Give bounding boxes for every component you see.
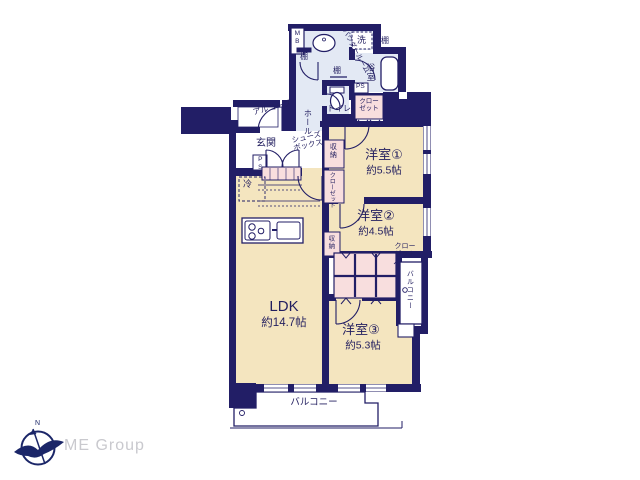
label-laundry: 洗 bbox=[357, 36, 366, 45]
bathtub-icon bbox=[381, 57, 398, 90]
floorplan-canvas: MB パウダールーム 洗 棚 棚 棚 浴室 PS トイレ クローゼット アルコー… bbox=[0, 0, 640, 480]
label-shelf-c: 棚 bbox=[333, 67, 341, 75]
label-ldk-name: LDK bbox=[269, 299, 298, 315]
ldk-floor bbox=[236, 176, 322, 384]
label-shelf-a: 棚 bbox=[381, 37, 389, 45]
label-room2-area: 約4.5帖 bbox=[358, 226, 394, 237]
label-shelf-b: 棚 bbox=[300, 53, 308, 61]
label-bathroom: 浴室 bbox=[366, 63, 375, 82]
label-room2-name: 洋室② bbox=[357, 209, 395, 223]
label-storage-room2: 収納 bbox=[326, 235, 333, 250]
kitchen-sink-icon bbox=[277, 222, 300, 239]
label-balcony-right: バルコニー bbox=[406, 270, 413, 310]
label-closet-room1: クローゼット bbox=[328, 172, 334, 208]
label-ps-bath: PS bbox=[356, 84, 365, 91]
label-meter-box: MB bbox=[293, 30, 300, 46]
sink-drain-icon bbox=[323, 38, 326, 41]
shoe-box bbox=[262, 167, 301, 180]
label-room3-area: 約5.3帖 bbox=[345, 340, 381, 351]
compass-north-label: N bbox=[35, 420, 40, 427]
label-toilet: トイレ bbox=[327, 105, 351, 113]
label-room3-name: 洋室③ bbox=[342, 323, 380, 337]
label-ldk-area: 約14.7帖 bbox=[261, 317, 306, 329]
logo-company-name: ME Group bbox=[64, 438, 145, 455]
label-ps-entrance: PS bbox=[256, 156, 263, 172]
label-room1-area: 約5.5帖 bbox=[366, 165, 402, 176]
label-closet-bath: クローゼット bbox=[358, 98, 380, 113]
balcony-right-step bbox=[398, 324, 414, 337]
label-room1-name: 洋室① bbox=[365, 148, 403, 162]
logo-mark bbox=[14, 429, 64, 465]
label-entrance: 玄関 bbox=[256, 139, 276, 150]
sink-icon bbox=[313, 35, 335, 52]
drain-icon bbox=[240, 411, 245, 416]
label-fridge: 冷 bbox=[243, 180, 252, 189]
label-closet-room2: クローゼット bbox=[393, 243, 417, 259]
label-storage-room1: 収納 bbox=[329, 143, 336, 159]
label-balcony-bottom: バルコニー bbox=[290, 398, 337, 408]
